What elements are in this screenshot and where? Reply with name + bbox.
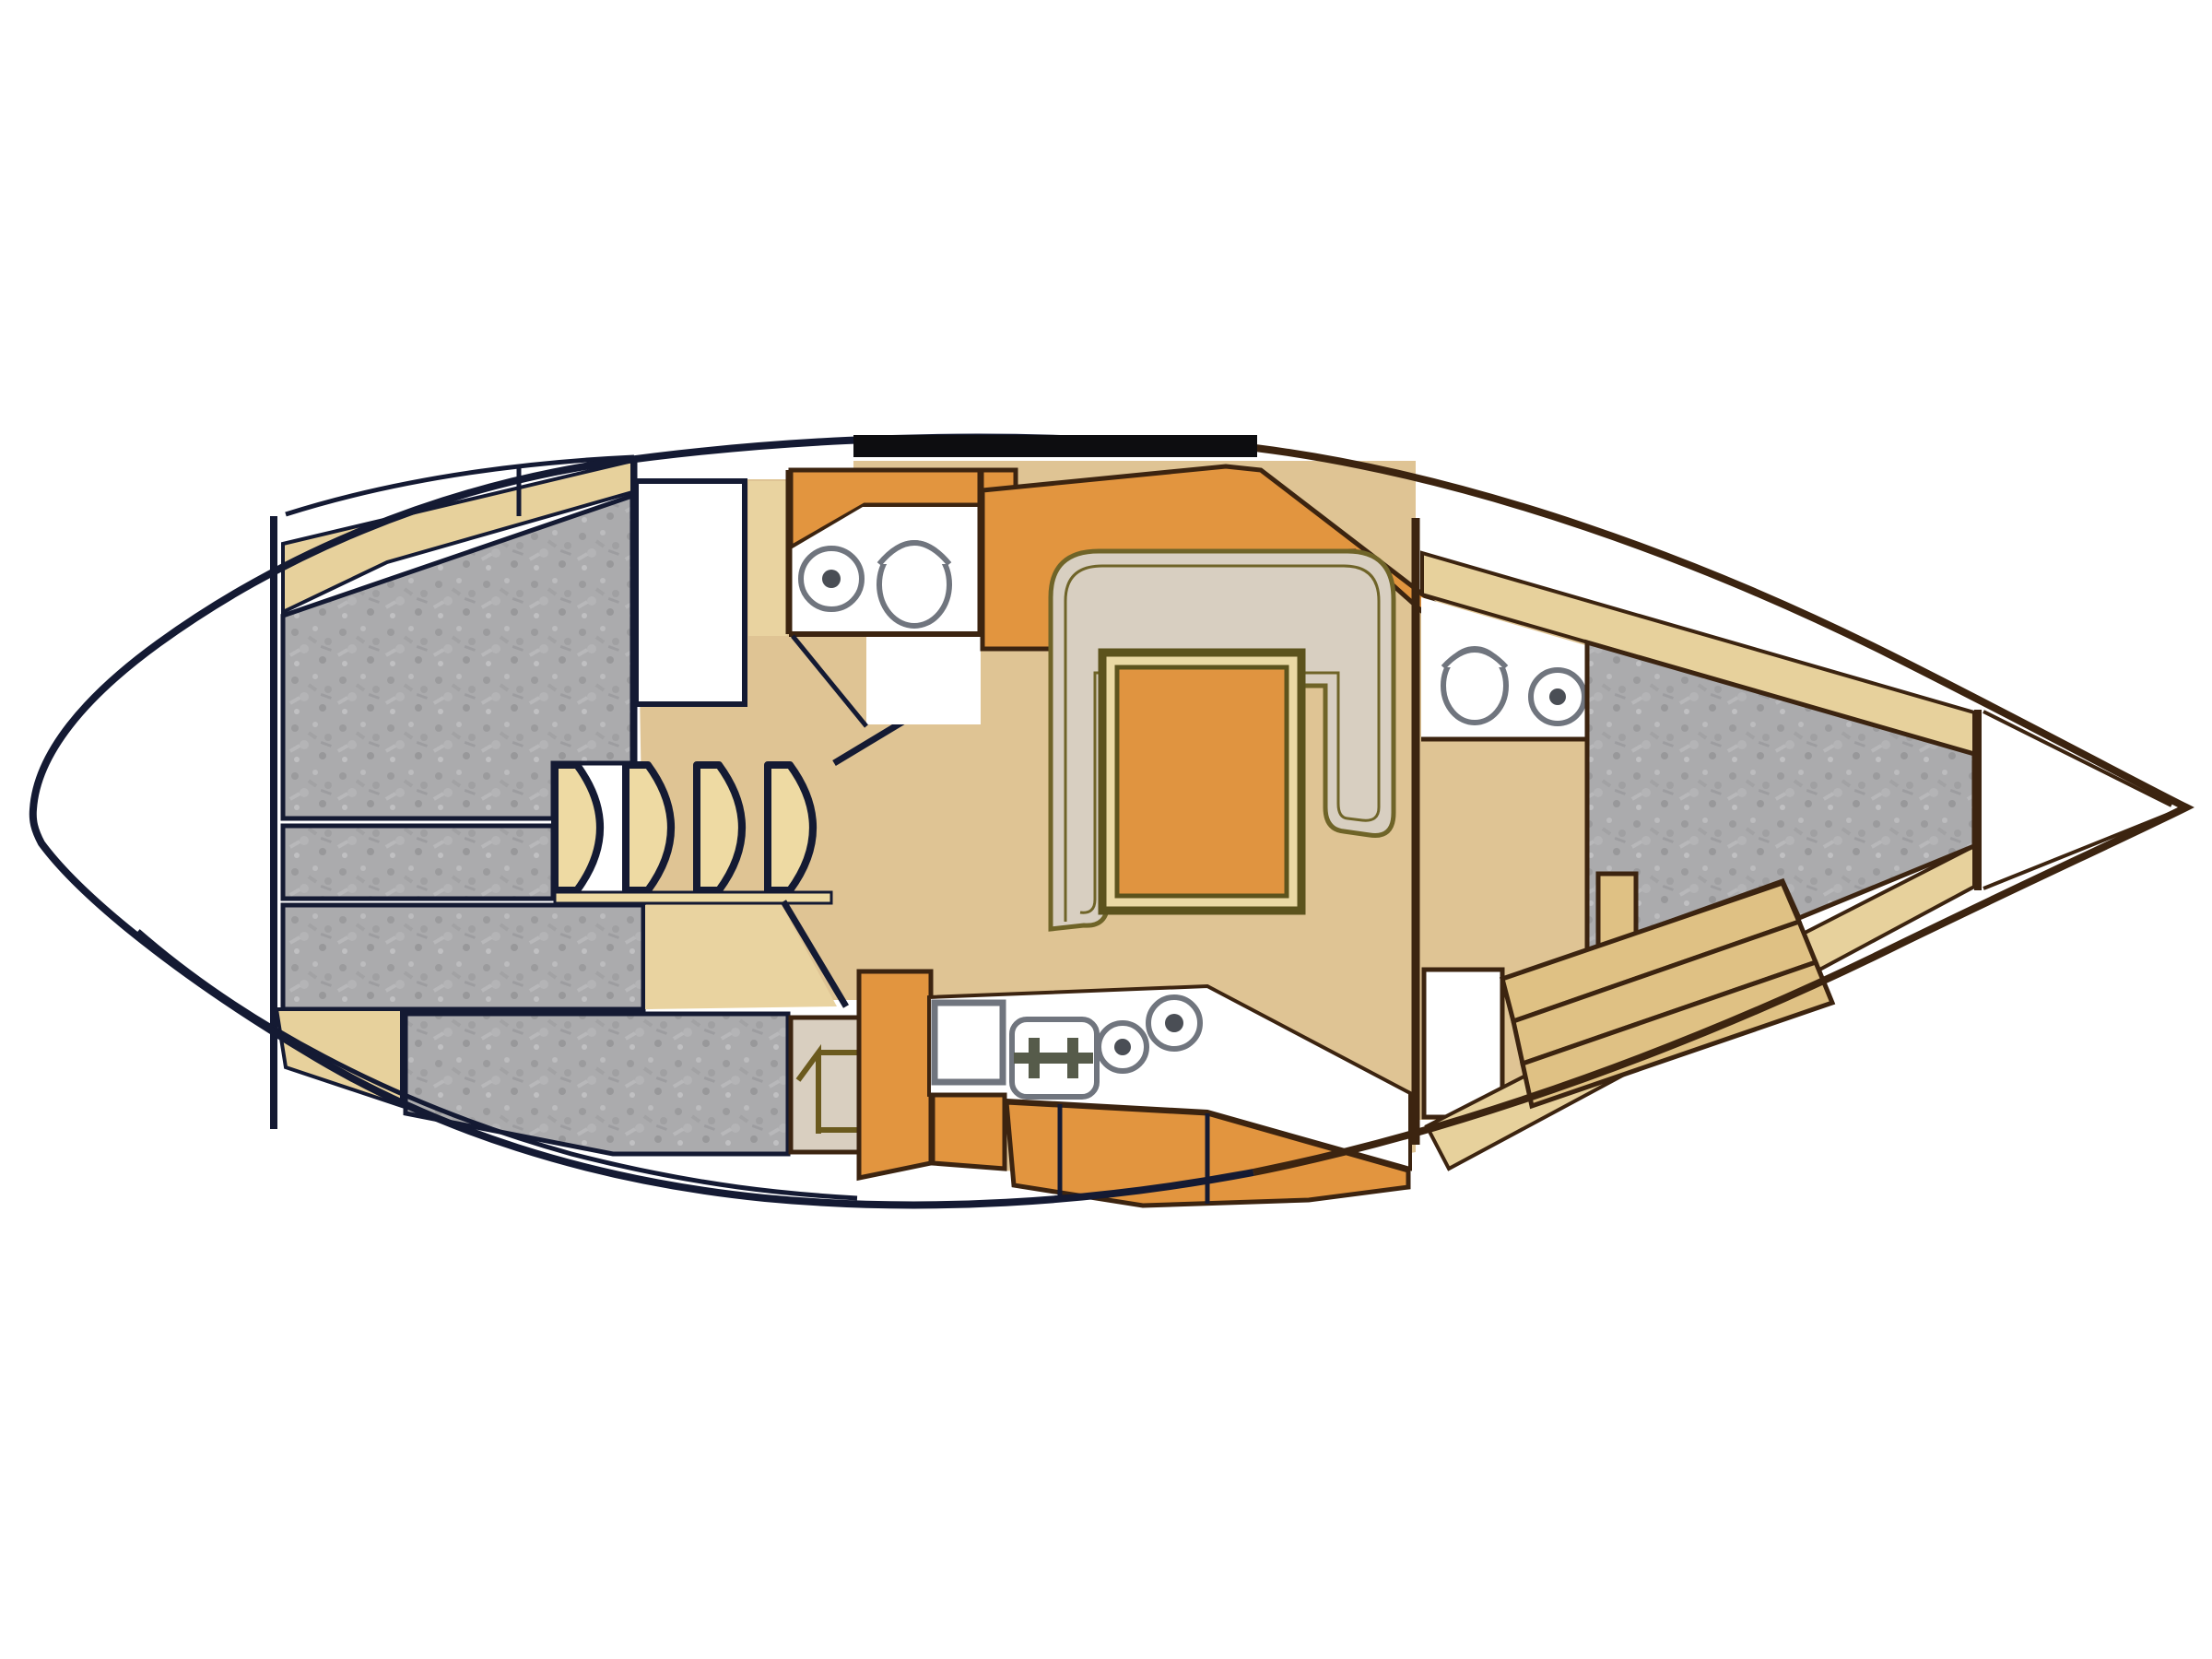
aft-berth-cushion-mid (283, 826, 553, 899)
aft-head-sink-drain-icon (822, 570, 841, 588)
hob-ring-1-center (1114, 1039, 1131, 1055)
hanging-locker (636, 481, 745, 704)
salon-table (1102, 653, 1301, 911)
floorplan-stage: Sailboat interior layout floor plan (top… (0, 0, 2212, 1659)
aft-head-lower (866, 636, 981, 724)
hob-ring-2-center (1165, 1014, 1183, 1032)
galley-sink-icon (935, 1003, 1003, 1082)
locker-shelf-strip (748, 481, 787, 636)
forward-sink-drain-icon (1549, 688, 1566, 705)
companionway-hatch-bar (853, 435, 1257, 457)
step-base-strip (555, 892, 831, 903)
aft-berth-cushion-lower (283, 905, 643, 1009)
galley-cabinet-left (933, 1095, 1005, 1169)
galley-tall-cabinet (859, 971, 931, 1178)
port-settee-cushion (406, 1014, 788, 1154)
galley-stove-icon (1012, 1019, 1097, 1097)
boat-floorplan-svg: Sailboat interior layout floor plan (top… (0, 0, 2212, 1659)
table-top (1117, 667, 1287, 896)
